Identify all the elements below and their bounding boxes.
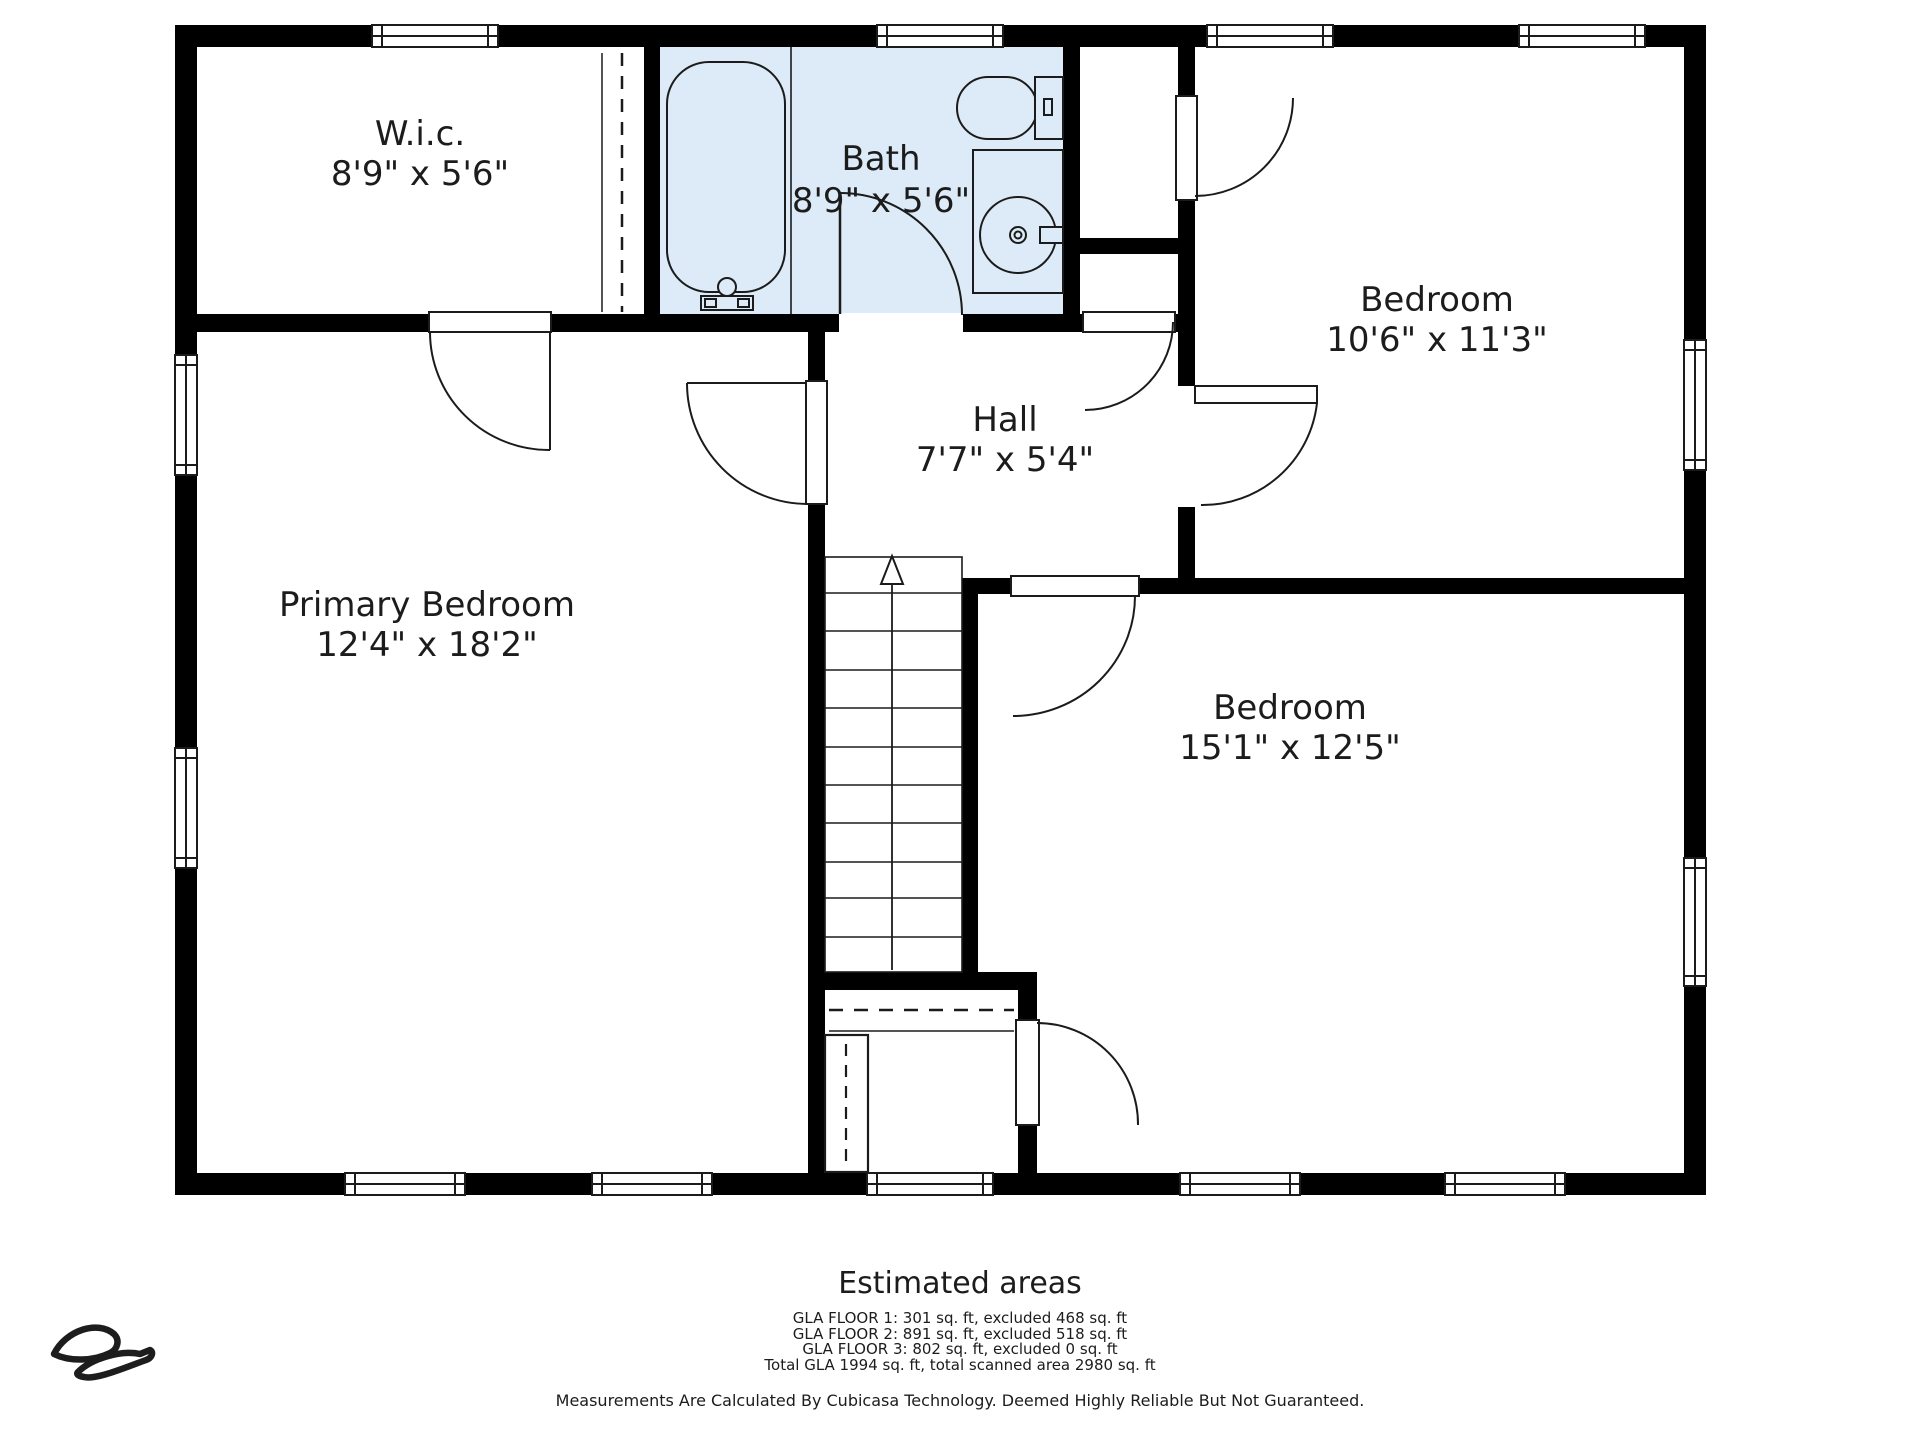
window — [1684, 858, 1706, 986]
disclaimer-text: Measurements Are Calculated By Cubicasa … — [0, 1391, 1920, 1410]
room-label-bedroom-bottom-dims: 15'1" x 12'5" — [1179, 728, 1401, 768]
bathtub-icon — [667, 62, 785, 310]
window — [1684, 340, 1706, 470]
bird-icon — [42, 1312, 160, 1404]
door-bedroom-top-closet — [1176, 96, 1293, 200]
under-stair-closet — [825, 1010, 1014, 1172]
window — [1519, 25, 1645, 47]
room-label-bedroom-top-dims: 10'6" x 11'3" — [1326, 320, 1548, 360]
window — [1445, 1173, 1565, 1195]
door-hall-closet — [1083, 312, 1175, 410]
door-primary-bedroom — [687, 381, 827, 504]
room-label-wic-name: W.i.c. — [375, 114, 465, 154]
stairs-icon — [825, 556, 962, 972]
estimated-areas-title: Estimated areas — [0, 1266, 1920, 1301]
window — [175, 748, 197, 868]
window — [1207, 25, 1333, 47]
room-label-primary-dims: 12'4" x 18'2" — [316, 625, 538, 665]
cubicasa-bird-logo — [42, 1312, 160, 1408]
room-label-bedroom-top-name: Bedroom — [1360, 280, 1514, 320]
room-label-wic-dims: 8'9" x 5'6" — [331, 154, 509, 194]
stairs-up-arrow — [881, 556, 903, 584]
window — [867, 1173, 993, 1195]
floorplan-page: W.i.c. 8'9" x 5'6" Bath 8'9" x 5'6" Bedr… — [0, 0, 1920, 1440]
door-under-stair — [1016, 1020, 1138, 1125]
door-bedroom-bottom — [1011, 576, 1139, 716]
wic-ceiling-break-lines — [602, 53, 622, 312]
room-label-bath-name: Bath — [841, 139, 920, 179]
window — [877, 25, 1003, 47]
window — [372, 25, 498, 47]
estimated-areas-block: Estimated areas GLA FLOOR 1: 301 sq. ft,… — [0, 1266, 1920, 1373]
room-label-hall-dims: 7'7" x 5'4" — [916, 440, 1094, 480]
sink-vanity-icon — [973, 150, 1063, 293]
window — [592, 1173, 712, 1195]
door-bedroom-top — [1176, 386, 1317, 507]
window — [175, 355, 197, 475]
room-label-bath-dims: 8'9" x 5'6" — [792, 181, 970, 221]
floorplan-drawing: W.i.c. 8'9" x 5'6" Bath 8'9" x 5'6" Bedr… — [0, 0, 1920, 1440]
window — [345, 1173, 465, 1195]
gla-total: Total GLA 1994 sq. ft, total scanned are… — [0, 1358, 1920, 1374]
room-label-hall-name: Hall — [972, 400, 1037, 440]
room-label-bedroom-bottom-name: Bedroom — [1213, 688, 1367, 728]
room-label-primary-name: Primary Bedroom — [279, 585, 575, 625]
window — [1180, 1173, 1300, 1195]
door-wic — [429, 312, 551, 450]
toilet-icon — [957, 77, 1063, 139]
